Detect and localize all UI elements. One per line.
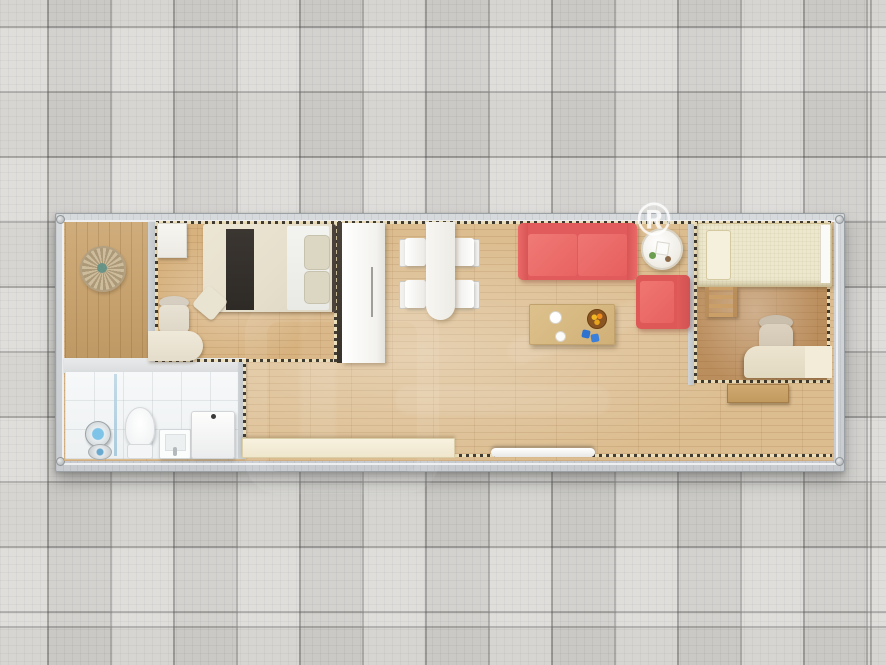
sofa-cushion-left [528, 234, 577, 276]
saucer [549, 311, 562, 324]
table-item [665, 256, 671, 262]
storage-bench [242, 438, 455, 458]
decor-center [97, 263, 107, 273]
dining-table [426, 222, 455, 320]
dining-chair-4 [453, 280, 480, 308]
sofa-armrest-right [627, 223, 637, 280]
glass-partition [114, 374, 117, 456]
fruit-bowl [587, 309, 607, 329]
pillow-1 [304, 235, 330, 270]
bed-frame-edge [332, 224, 336, 312]
cup-white [555, 331, 566, 342]
watermark-stroke-bar2 [395, 385, 610, 415]
bed-runner [226, 229, 254, 310]
cup-blue-2 [590, 333, 599, 342]
work-desk-return [805, 346, 832, 378]
loft-bed [697, 223, 832, 287]
water-heater [191, 411, 235, 459]
armchair-back [677, 275, 690, 329]
sofa-cushion-right [578, 234, 627, 276]
toilet-bowl [125, 407, 155, 448]
toilet-tank [127, 444, 153, 459]
coffee-table [529, 304, 615, 345]
loft-bed-pillow [706, 230, 731, 280]
pillow-2 [304, 271, 330, 304]
wash-basin [159, 429, 191, 459]
dining-chair-1-seat [405, 238, 426, 266]
door-threshold [491, 448, 595, 457]
registered-symbol: ® [637, 193, 671, 245]
floorplan-scene: ® [0, 0, 886, 665]
corner-desk [148, 331, 203, 361]
nightstand [727, 384, 789, 403]
armchair [636, 275, 690, 329]
wall-cabinet [157, 223, 187, 258]
double-bed [203, 224, 336, 312]
dining-chair-3-seat [453, 238, 474, 266]
round-wall-decor [80, 246, 126, 292]
corner-bolt-bottom-right [835, 457, 844, 466]
two-seat-sofa [518, 223, 637, 280]
corner-bolt-top-right [835, 215, 844, 224]
cup-blue-1 [581, 329, 590, 338]
registered-watermark: ® [637, 196, 671, 242]
table-plant [649, 252, 656, 259]
dining-chair-2-seat [405, 280, 426, 308]
dash-bedroom2-bottom [694, 380, 830, 383]
wardrobe [342, 223, 385, 363]
work-desk [744, 346, 832, 378]
armchair-seat [640, 281, 674, 323]
loft-bed-shelf [820, 225, 830, 283]
ladder [705, 287, 737, 317]
dining-chair-3 [453, 238, 480, 266]
side-chair [157, 296, 191, 334]
side-chair-seat [159, 305, 189, 333]
dining-chair-4-seat [453, 280, 474, 308]
sofa-armrest-left [518, 223, 528, 280]
toilet [125, 407, 153, 457]
dining-chair-1 [399, 238, 426, 266]
dining-chair-2 [399, 280, 426, 308]
floor-drain [88, 444, 112, 460]
wardrobe-handle [371, 267, 373, 317]
basin-faucet [173, 447, 177, 456]
heater-knob [211, 414, 216, 419]
